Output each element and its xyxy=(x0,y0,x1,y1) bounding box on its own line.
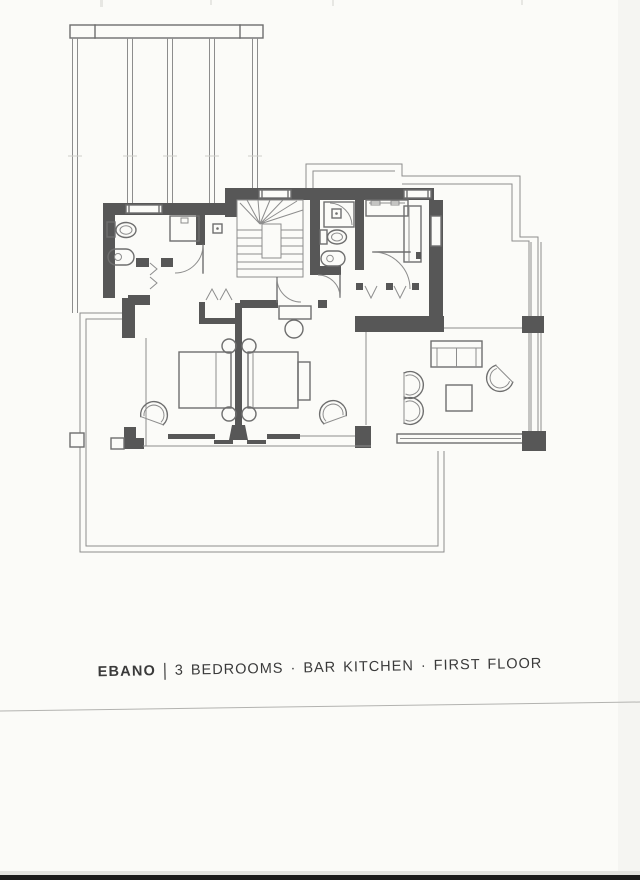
pillar-notch xyxy=(111,438,124,449)
scanned-floor-plan-page: EBANO|3 BEDROOMS · BAR KITCHEN · FIRST F… xyxy=(0,0,640,880)
scan-bottom-shadow xyxy=(0,871,640,875)
parapet-post xyxy=(70,433,84,447)
scan-bottom-bar xyxy=(0,875,640,880)
window-bath1 xyxy=(126,205,162,213)
floor-plan-drawing xyxy=(0,0,640,880)
pergola-beam xyxy=(70,25,263,38)
caption-separator: | xyxy=(163,661,168,681)
window-stairs xyxy=(259,190,291,198)
scan-edge-shading xyxy=(618,0,640,880)
caption-project-name: EBANO xyxy=(98,663,157,680)
window-dressing xyxy=(404,190,431,198)
window-east-wall xyxy=(431,216,441,246)
